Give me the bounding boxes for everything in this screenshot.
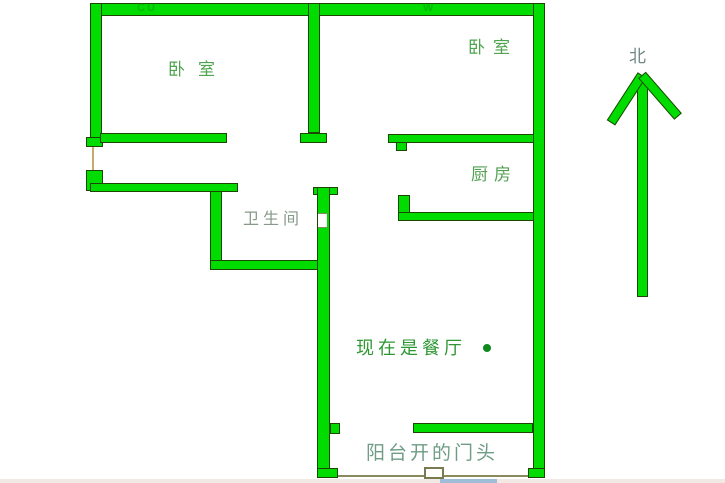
- wall-kitchen-top: [388, 134, 545, 143]
- wall-bedroom-divider: [308, 3, 320, 133]
- north-label: 北: [629, 48, 647, 65]
- wall-right-foot: [528, 468, 545, 478]
- wall-dining-left-foot: [317, 468, 338, 478]
- bottom-page-strip-accent: [440, 479, 497, 483]
- balcony-sill-line-left: [338, 475, 424, 477]
- wall-dining-left: [317, 187, 330, 478]
- wall-bedroom-divider-foot: [300, 133, 327, 143]
- dining-dot-icon: [483, 344, 491, 352]
- kitchen-label: 厨房: [471, 166, 517, 183]
- bottom-page-strip: [0, 479, 725, 483]
- balcony-door-symbol: [424, 467, 444, 479]
- wall-bedroom1-bottom: [100, 133, 227, 143]
- wall-kitchen-bottom: [398, 212, 545, 221]
- balcony-label: 阳台开的门头: [366, 444, 498, 463]
- wall-balcony-divider: [413, 423, 533, 433]
- wall-right: [533, 3, 545, 478]
- wall-bathroom-left: [210, 191, 222, 270]
- wall-kitchen-top-stub: [396, 142, 407, 151]
- floor-plan: 卧室 卧室 厨房 卫生间 现在是餐厅 阳台开的门头 北 CU W: [0, 0, 725, 483]
- wall-dining-left-stub: [330, 423, 340, 434]
- watermark-fragment: CU: [137, 2, 157, 14]
- wall-bathroom-bottom: [210, 260, 330, 270]
- bathroom-door-notch: [318, 213, 327, 228]
- bathroom-label: 卫生间: [243, 212, 303, 228]
- balcony-sill-line-right: [444, 475, 528, 477]
- wall-left-upper: [90, 3, 102, 147]
- watermark-fragment: W: [423, 2, 435, 14]
- bedroom2-label: 卧室: [468, 39, 518, 56]
- dining-label: 现在是餐厅: [356, 339, 466, 357]
- north-arrow-icon: [637, 76, 648, 297]
- bedroom1-label: 卧室: [168, 61, 228, 78]
- left-door-opening-line: [92, 147, 94, 172]
